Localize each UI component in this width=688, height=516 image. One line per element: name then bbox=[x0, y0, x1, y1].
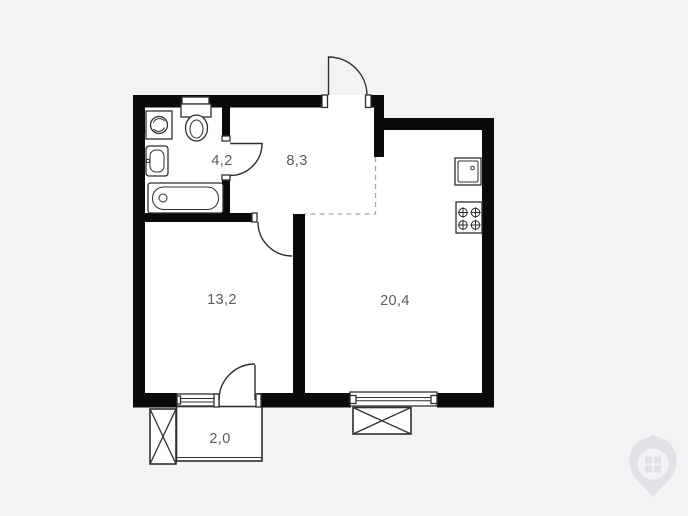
room-label-hallway: 8,3 bbox=[286, 153, 307, 169]
kitchen-sink-icon bbox=[455, 158, 481, 185]
floor-plan-canvas: 4,2 8,3 13,2 20,4 2,0 bbox=[0, 0, 688, 516]
bedroom-window bbox=[177, 394, 219, 406]
wall-kitchen-top bbox=[374, 118, 494, 130]
stove-icon bbox=[456, 202, 482, 233]
bathtub-icon bbox=[148, 183, 223, 213]
wall-bathroom-bottom bbox=[133, 213, 257, 222]
wall-bedroom-living-divider bbox=[293, 214, 305, 393]
room-label-kitchen-living: 20,4 bbox=[380, 293, 410, 309]
room-label-balcony: 2,0 bbox=[209, 431, 230, 447]
wall-right bbox=[482, 118, 494, 408]
room-label-bedroom: 13,2 bbox=[207, 292, 237, 308]
apartment-floor bbox=[133, 95, 494, 408]
living-room-window bbox=[350, 392, 437, 406]
ac-basket-bottom-icon bbox=[353, 408, 411, 435]
floor-plan: 4,2 8,3 13,2 20,4 2,0 bbox=[0, 0, 688, 516]
ac-basket-left-icon bbox=[150, 409, 176, 464]
bathroom-sink-icon bbox=[146, 146, 168, 176]
wall-top bbox=[133, 95, 327, 108]
wall-left bbox=[133, 95, 145, 408]
wall-bottom-right bbox=[437, 393, 494, 408]
wall-bottom-left bbox=[133, 393, 177, 408]
room-label-bathroom: 4,2 bbox=[211, 153, 232, 169]
wall-bottom-center bbox=[257, 393, 351, 408]
washing-machine-icon bbox=[146, 111, 172, 139]
